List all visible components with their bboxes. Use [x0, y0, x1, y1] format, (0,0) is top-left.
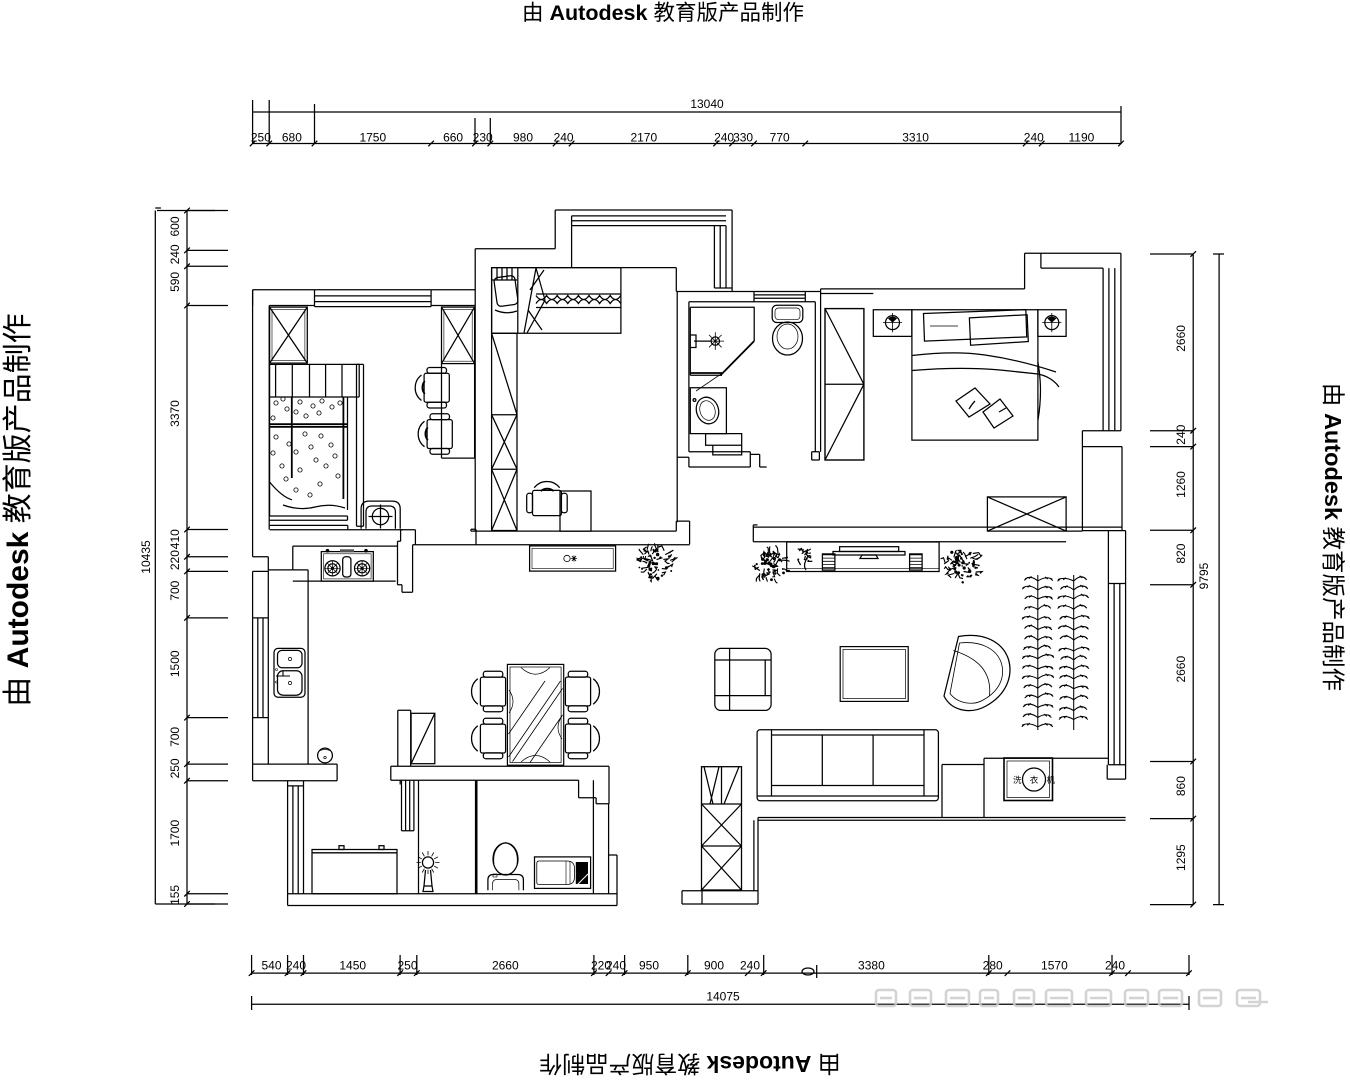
- svg-text:680: 680: [282, 131, 302, 145]
- svg-text:3380: 3380: [858, 959, 885, 973]
- svg-text:240: 240: [714, 131, 734, 145]
- svg-text:1295: 1295: [1174, 844, 1188, 871]
- svg-text:1700: 1700: [168, 820, 182, 847]
- svg-text:3370: 3370: [168, 400, 182, 427]
- svg-text:1750: 1750: [359, 131, 386, 145]
- svg-text:1260: 1260: [1174, 471, 1188, 498]
- svg-text:240: 240: [1174, 424, 1188, 444]
- svg-text:14075: 14075: [706, 990, 740, 1004]
- svg-text:540: 540: [261, 959, 281, 973]
- svg-text:2170: 2170: [630, 131, 657, 145]
- svg-text:660: 660: [443, 131, 463, 145]
- svg-text:9795: 9795: [1197, 562, 1211, 589]
- svg-text:410: 410: [168, 529, 182, 549]
- svg-text:由 Autodesk 教育版产品制作: 由 Autodesk 教育版产品制作: [539, 1051, 841, 1077]
- svg-text:2660: 2660: [1174, 325, 1188, 352]
- svg-text:230: 230: [473, 131, 493, 145]
- svg-text:950: 950: [639, 959, 659, 973]
- svg-text:240: 240: [286, 959, 306, 973]
- svg-text:240: 240: [554, 131, 574, 145]
- svg-text:1500: 1500: [168, 650, 182, 677]
- svg-text:洗衣机: 洗衣机: [1013, 775, 1055, 785]
- svg-text:220: 220: [168, 550, 182, 570]
- svg-text:1190: 1190: [1068, 131, 1094, 145]
- svg-text:860: 860: [1174, 776, 1188, 796]
- svg-text:280: 280: [983, 959, 1003, 973]
- svg-text:10435: 10435: [139, 540, 153, 574]
- svg-text:250: 250: [251, 131, 271, 145]
- svg-text:700: 700: [168, 727, 182, 747]
- svg-text:1450: 1450: [339, 959, 366, 973]
- svg-text:240: 240: [1024, 131, 1044, 145]
- svg-text:240: 240: [168, 244, 182, 264]
- svg-text:由 Autodesk 教育版产品制作: 由 Autodesk 教育版产品制作: [2, 313, 35, 706]
- svg-text:700: 700: [168, 580, 182, 600]
- svg-text:980: 980: [513, 131, 533, 145]
- svg-text:2660: 2660: [1174, 656, 1188, 683]
- svg-text:由 Autodesk 教育版产品制作: 由 Autodesk 教育版产品制作: [522, 1, 804, 25]
- svg-text:1570: 1570: [1041, 959, 1068, 973]
- svg-text:330: 330: [733, 131, 753, 145]
- svg-text:250: 250: [397, 959, 417, 973]
- svg-text:155: 155: [168, 885, 182, 905]
- svg-text:900: 900: [704, 959, 724, 973]
- svg-text:13040: 13040: [690, 97, 724, 111]
- svg-text:250: 250: [168, 758, 182, 778]
- svg-text:770: 770: [770, 131, 790, 145]
- svg-text:由 Autodesk 教育版产品制作: 由 Autodesk 教育版产品制作: [1320, 383, 1346, 691]
- svg-text:820: 820: [1174, 543, 1188, 563]
- svg-text:240: 240: [606, 959, 626, 973]
- svg-text:3310: 3310: [902, 131, 929, 145]
- svg-text:600: 600: [168, 216, 182, 236]
- svg-text:590: 590: [168, 272, 182, 292]
- svg-text:2660: 2660: [492, 959, 519, 973]
- svg-text:240: 240: [1105, 959, 1125, 973]
- svg-text:240: 240: [740, 959, 760, 973]
